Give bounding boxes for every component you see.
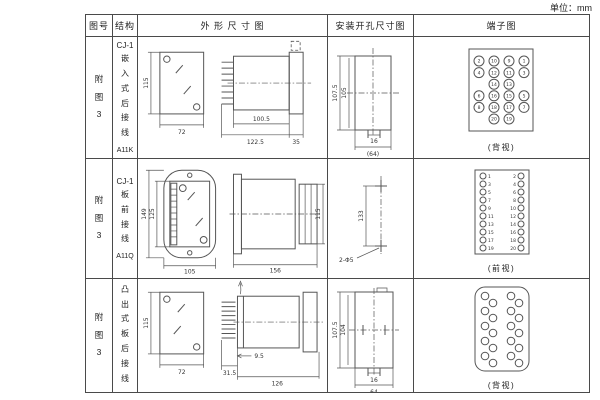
svg-text:18: 18 [491, 105, 497, 111]
structure-mount: 嵌入式后接线 [120, 52, 130, 141]
svg-text:19: 19 [488, 246, 494, 252]
svg-text:13: 13 [488, 222, 494, 228]
svg-text:16: 16 [491, 93, 497, 99]
outline-drawing-a11q: 149 125 105 156 115 [138, 162, 327, 276]
install-cell-a11k: 107.5 105 16 (64) [328, 37, 414, 159]
svg-text:7: 7 [522, 105, 525, 111]
dim-label: 2-Φ5 [339, 257, 354, 264]
svg-text:8: 8 [513, 198, 516, 204]
svg-text:17: 17 [506, 105, 512, 111]
dim-label: (64) [366, 151, 378, 158]
install-drawing-a11q: 133 2-Φ5 [329, 162, 413, 276]
svg-text:2: 2 [513, 174, 516, 180]
dim-label: 149 [141, 208, 148, 220]
svg-text:8: 8 [477, 105, 480, 111]
svg-text:3: 3 [522, 70, 525, 76]
svg-text:4: 4 [477, 70, 480, 76]
install-cell-a11q: 133 2-Φ5 [328, 159, 414, 279]
dim-label: 104 [340, 324, 347, 336]
dim-label: 31.5 [223, 369, 236, 376]
svg-text:2: 2 [477, 58, 480, 64]
structure-code: A11Q [116, 253, 133, 260]
svg-text:14: 14 [491, 81, 497, 87]
dim-label: 107.5 [332, 84, 339, 101]
terminal-pins-back-a11k: 2468101214161820911131517191357 [474, 56, 529, 124]
svg-text:20: 20 [491, 116, 497, 122]
dim-label: 105 [184, 268, 196, 275]
dim-label: 115 [143, 77, 150, 89]
structure-mount: 凸出式板后接线 [120, 283, 130, 387]
fig-label: 附图3 [94, 309, 105, 363]
svg-text:6: 6 [477, 93, 480, 99]
svg-text:10: 10 [510, 206, 516, 212]
dim-label: 105 [341, 87, 348, 99]
terminal-caption: (前视) [488, 263, 515, 274]
install-drawing-a11h: 107.5 104 16 64 [329, 279, 413, 392]
dim-label: 107.5 [332, 321, 339, 338]
dim-label: 16 [370, 377, 378, 384]
outline-drawing-a11h: 115 72 31.5 9.5 126 [138, 279, 327, 392]
svg-text:15: 15 [488, 230, 494, 236]
svg-text:12: 12 [510, 214, 516, 220]
structure-model: CJ-1 [117, 177, 134, 186]
svg-text:18: 18 [510, 238, 516, 244]
dim-label: 156 [270, 267, 282, 274]
structure-cell-a11k: CJ-1 嵌入式后接线 A11K [113, 37, 138, 159]
terminal-diagram-a11h [442, 281, 562, 377]
header-outline: 外 形 尺 寸 图 [138, 15, 328, 37]
header-fig-no: 图号 [86, 15, 113, 37]
svg-text:15: 15 [506, 93, 512, 99]
svg-text:12: 12 [491, 70, 497, 76]
svg-text:17: 17 [488, 238, 494, 244]
terminal-diagram-a11q: 1357911131517192468101214161820 [442, 164, 562, 260]
outline-cell-a11q: 149 125 105 156 115 [138, 159, 328, 279]
terminal-cell-a11k: 2468101214161820911131517191357 (背视) [414, 37, 589, 159]
terminal-cell-a11q: 1357911131517192468101214161820 (前视) [414, 159, 589, 279]
fig-cell-a11k: 附图3 [86, 37, 113, 159]
svg-text:9: 9 [488, 206, 491, 212]
terminal-caption: (背视) [488, 380, 515, 391]
dim-label: 100.5 [253, 115, 270, 122]
svg-text:11: 11 [506, 70, 512, 76]
dim-label: 115 [143, 317, 150, 329]
terminal-pins-front-a11q: 1357911131517192468101214161820 [480, 173, 524, 252]
svg-text:3: 3 [488, 182, 491, 188]
datasheet-page: 单位：mm 图号 结构 外 形 尺 寸 图 安装开孔尺寸图 端子图 附图3 CJ… [0, 0, 600, 400]
dim-label: 72 [178, 368, 186, 375]
header-structure: 结构 [113, 15, 138, 37]
svg-text:19: 19 [506, 116, 512, 122]
svg-text:7: 7 [488, 198, 491, 204]
structure-cell-a11q: CJ-1 板前接线 A11Q [113, 159, 138, 279]
dim-label: 126 [272, 380, 284, 387]
fig-label: 附图3 [94, 71, 105, 125]
terminal-diagram-a11k: 2468101214161820911131517191357 [442, 43, 562, 139]
dim-label: 72 [178, 128, 186, 135]
svg-text:4: 4 [513, 182, 516, 188]
svg-text:13: 13 [506, 81, 512, 87]
dim-label: 125 [149, 208, 156, 220]
svg-text:6: 6 [513, 190, 516, 196]
outline-cell-a11h: 115 72 31.5 9.5 126 [138, 279, 328, 392]
dim-label: 16 [370, 138, 378, 145]
svg-text:9: 9 [507, 58, 510, 64]
svg-text:10: 10 [491, 58, 497, 64]
outline-cell-a11k: 115 72 100.5 122.5 35 [138, 37, 328, 159]
outline-drawing-a11k: 115 72 100.5 122.5 35 [138, 38, 327, 158]
structure-cell-a11h: CJ-1 凸出式板后接线 A11H [113, 279, 138, 392]
dim-label: 35 [292, 138, 300, 145]
install-cell-a11h: 107.5 104 16 64 [328, 279, 414, 392]
terminal-cell-a11h: (背视) [414, 279, 589, 392]
svg-text:14: 14 [510, 222, 516, 228]
spec-table: 图号 结构 外 形 尺 寸 图 安装开孔尺寸图 端子图 附图3 CJ-1 嵌入式… [85, 14, 590, 393]
terminal-pins-back-a11h [481, 292, 523, 367]
structure-model: CJ-1 [117, 41, 134, 50]
dim-label: 64 [370, 389, 378, 393]
fig-label: 附图3 [94, 192, 105, 246]
unit-label: 单位：mm [550, 1, 592, 14]
structure-model: CJ-1 [117, 279, 134, 281]
terminal-caption: (背视) [488, 142, 515, 153]
svg-text:11: 11 [488, 214, 494, 220]
svg-text:20: 20 [510, 246, 516, 252]
fig-cell-a11h: 附图3 [86, 279, 113, 392]
dim-label: 122.5 [247, 138, 264, 145]
install-drawing-a11k: 107.5 105 16 (64) [329, 38, 413, 158]
dim-label: 115 [315, 208, 322, 220]
structure-mount: 板前接线 [120, 188, 130, 247]
svg-text:16: 16 [510, 230, 516, 236]
dim-label: 133 [358, 210, 365, 222]
dim-label: 9.5 [254, 352, 264, 359]
svg-text:5: 5 [522, 93, 525, 99]
header-terminal: 端子图 [414, 15, 589, 37]
structure-code: A11K [117, 147, 134, 154]
svg-text:5: 5 [488, 190, 491, 196]
svg-text:1: 1 [522, 58, 525, 64]
header-install: 安装开孔尺寸图 [328, 15, 414, 37]
svg-text:1: 1 [488, 174, 491, 180]
fig-cell-a11q: 附图3 [86, 159, 113, 279]
